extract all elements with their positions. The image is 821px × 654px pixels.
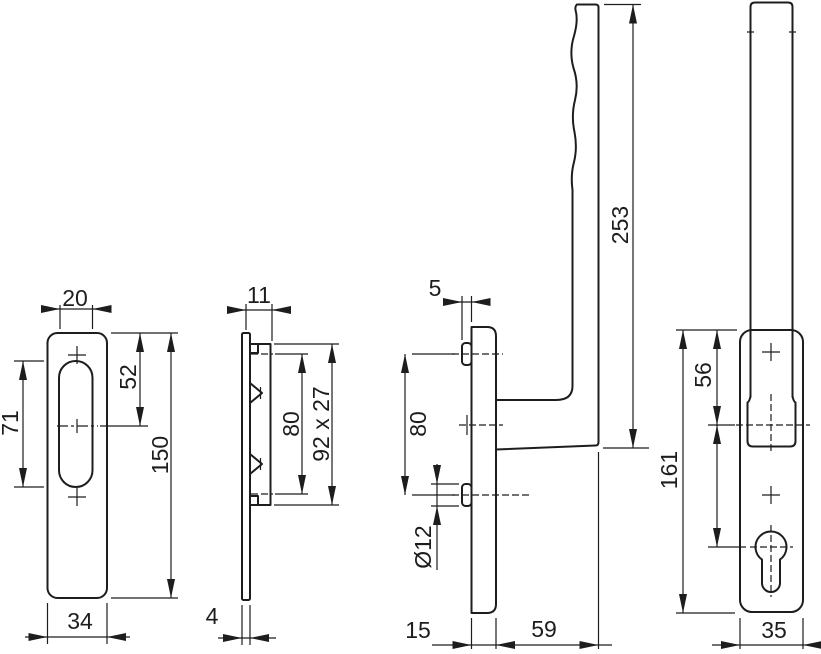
screw-cross-top-front xyxy=(762,343,780,361)
dim-label-56: 56 xyxy=(690,362,716,388)
view-backplate-front: 20 52 71 150 34 xyxy=(0,285,178,644)
dim-label-92x27: 92 x 27 xyxy=(308,386,334,461)
dim-label-52: 52 xyxy=(115,364,141,390)
handle-slot-outline xyxy=(59,361,93,487)
dim-label-11: 11 xyxy=(247,282,271,308)
arrow xyxy=(721,641,740,649)
arrow xyxy=(19,361,27,380)
dim-label-34: 34 xyxy=(67,608,93,634)
screw-cross-bottom-front xyxy=(762,486,780,504)
arrow xyxy=(433,506,441,525)
arrow xyxy=(713,330,721,349)
arrow xyxy=(19,468,27,487)
arrow xyxy=(580,641,599,649)
plate-section-outline xyxy=(242,333,250,600)
dim-label-15: 15 xyxy=(405,617,431,643)
arrow xyxy=(713,528,721,547)
dim-label-161: 161 xyxy=(656,451,682,489)
arrow xyxy=(136,407,144,426)
dim-label-80: 80 xyxy=(278,411,304,437)
dim-label-dia12: Ø12 xyxy=(410,525,436,568)
arrow xyxy=(272,306,291,314)
view-backplate-side: 11 80 92 x 27 4 xyxy=(206,282,339,645)
arrow xyxy=(679,594,687,613)
arrow xyxy=(401,476,409,495)
view-handle-side: 5 80 Ø12 253 15 59 xyxy=(401,5,649,650)
arrow xyxy=(136,333,144,352)
screw-cross-bottom xyxy=(68,488,86,506)
arrow xyxy=(629,429,637,448)
arrow xyxy=(496,641,515,649)
dim-label-20: 20 xyxy=(62,285,88,311)
pad-outline xyxy=(250,344,271,505)
arrow xyxy=(167,333,175,352)
arrow xyxy=(803,641,821,649)
view-handle-front: 56 161 35 xyxy=(656,3,821,650)
drawing-canvas: 20 52 71 150 34 xyxy=(0,0,821,649)
arrow xyxy=(443,298,462,306)
arrow xyxy=(250,634,269,642)
arrow xyxy=(328,486,336,505)
grip-left-outline xyxy=(496,5,577,401)
dim-label-71: 71 xyxy=(0,410,23,436)
arrow xyxy=(713,406,721,425)
technical-drawing: 20 52 71 150 34 xyxy=(0,0,821,649)
arrow xyxy=(328,344,336,363)
dim-label-35: 35 xyxy=(761,617,787,643)
arrow xyxy=(453,641,472,649)
arrow xyxy=(107,633,126,641)
dim-label-80-side: 80 xyxy=(405,411,431,437)
arrow xyxy=(41,305,60,313)
arrow xyxy=(223,634,242,642)
arrow xyxy=(679,330,687,349)
dim-label-59: 59 xyxy=(531,616,557,642)
handle-bar-outline xyxy=(751,3,793,398)
arrow xyxy=(401,354,409,373)
dim-label-5: 5 xyxy=(429,275,442,301)
dim-label-253: 253 xyxy=(607,206,633,244)
dim-label-150: 150 xyxy=(147,436,173,474)
arrow xyxy=(167,579,175,598)
arrow xyxy=(227,306,246,314)
arrow xyxy=(93,305,112,313)
arrow xyxy=(298,354,306,373)
handle-plate-section xyxy=(472,327,497,613)
arrow xyxy=(629,5,637,24)
backplate-outline xyxy=(48,333,108,598)
arrow xyxy=(713,425,721,444)
dim-label-4: 4 xyxy=(206,603,219,629)
arrow xyxy=(472,298,491,306)
ext-plate-thickness xyxy=(242,605,250,645)
arrow xyxy=(29,633,48,641)
arrow xyxy=(433,465,441,484)
grip-right-outline xyxy=(496,5,599,450)
arrow xyxy=(298,475,306,494)
